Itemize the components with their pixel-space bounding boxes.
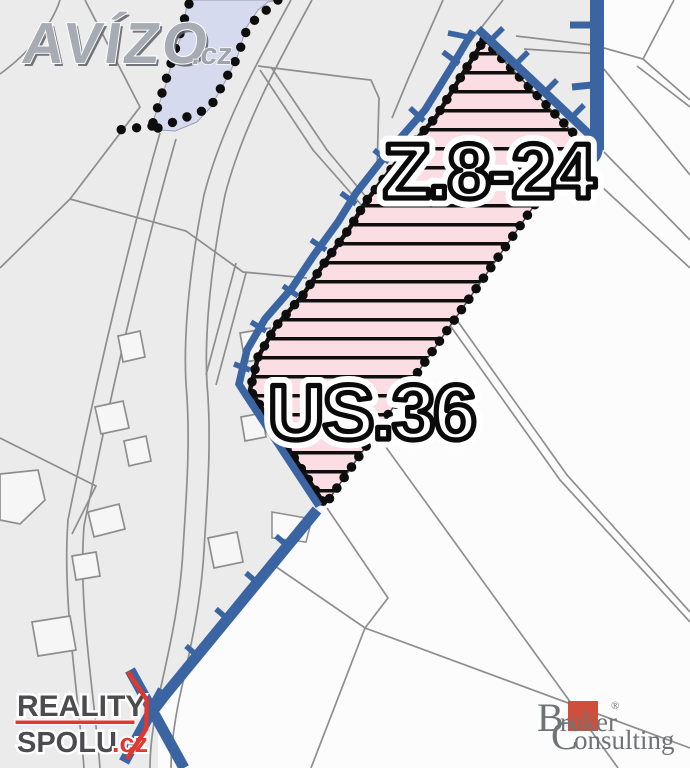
svg-text:SPOLU: SPOLU [17, 727, 117, 759]
svg-text:Z.8-24: Z.8-24 [383, 127, 596, 215]
svg-text:®: ® [611, 700, 619, 712]
svg-text:.cz: .cz [190, 38, 235, 71]
svg-text:US.36: US.36 [268, 368, 475, 456]
svg-text:REALITY: REALITY [17, 690, 145, 723]
svg-text:AVÍZO: AVÍZO [18, 11, 215, 76]
svg-text:onsulting: onsulting [574, 725, 675, 755]
